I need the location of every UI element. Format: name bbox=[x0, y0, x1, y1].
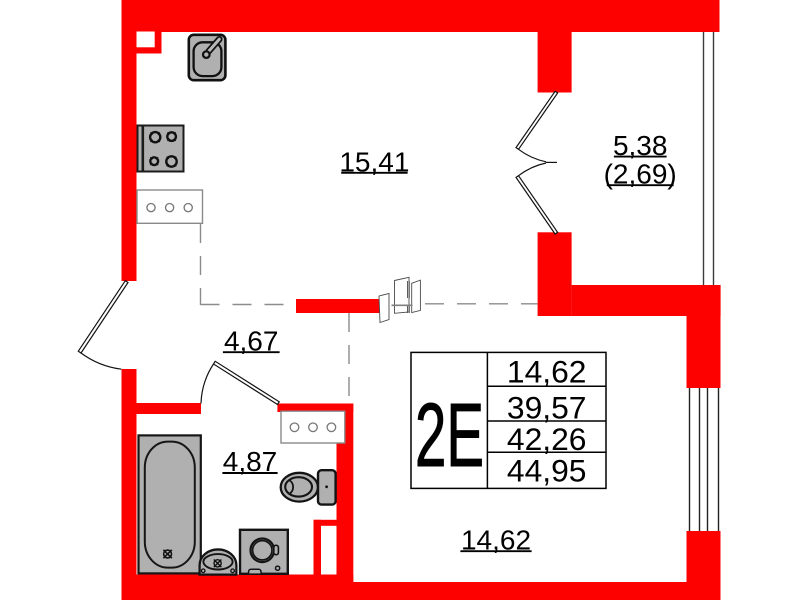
svg-text:39,57: 39,57 bbox=[507, 389, 587, 425]
svg-text:44,95: 44,95 bbox=[507, 453, 587, 489]
svg-text:14,62: 14,62 bbox=[507, 354, 587, 390]
svg-text:2E: 2E bbox=[415, 386, 484, 486]
